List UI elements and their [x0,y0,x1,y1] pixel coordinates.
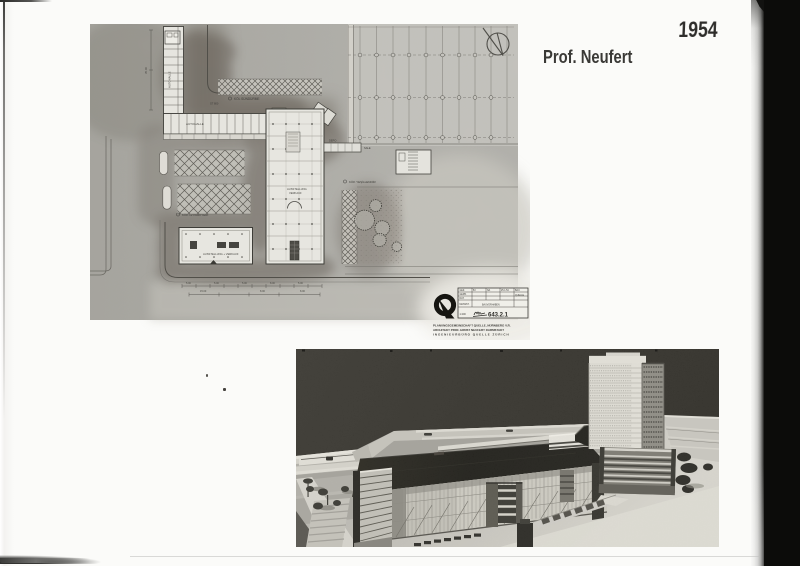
svg-text:35.00: 35.00 [144,67,148,74]
svg-text:5.00: 5.00 [186,282,191,285]
svg-text:SALE: SALE [364,146,371,150]
svg-text:8.00: 8.00 [260,290,265,293]
svg-text:5.00: 5.00 [298,282,303,285]
svg-text:AUSSTELLUNG: AUSSTELLUNG [287,187,307,191]
svg-text:GEZ.: GEZ. [460,290,466,292]
svg-text:KÖL SÜNDÜRME: KÖL SÜNDÜRME [234,97,260,101]
svg-text:ARCHITEKT PROF. ERNST NEUFERT: ARCHITEKT PROF. ERNST NEUFERT DARMSTADT [433,328,504,332]
svg-text:KÖK 12 PARKYERI: KÖK 12 PARKYERI [182,213,208,217]
svg-text:643.2.1: 643.2.1 [488,313,509,319]
svg-text:AUTOHALLE: AUTOHALLE [186,122,204,126]
svg-text:15.00: 15.00 [200,290,207,293]
svg-text:1:200: 1:200 [460,313,467,316]
svg-text:QUELLE: QUELLE [515,295,525,297]
svg-text:8.00: 8.00 [270,282,275,285]
svg-text:MASSST.: MASSST. [460,303,470,306]
svg-text:25.1.54: 25.1.54 [501,290,509,292]
svg-text:NA: NA [487,289,491,292]
svg-text:GEPR.: GEPR. [460,294,468,296]
svg-text:ST 800: ST 800 [210,102,219,106]
svg-text:VERKAUF: VERKAUF [289,191,302,195]
svg-text:DAT.: DAT. [460,297,465,300]
svg-text:AUSSTELLUNG + VERKAUF: AUSSTELLUNG + VERKAUF [203,252,239,256]
svg-text:AUTOHALLE: AUTOHALLE [168,71,172,88]
svg-text:B.I: B.I [473,290,476,292]
svg-text:DEPO: DEPO [329,139,336,143]
svg-text:5.00: 5.00 [214,282,219,285]
svg-text:8.00: 8.00 [300,290,305,293]
svg-text:INGENIEURBÜRO QUELLE ZÜRICH: INGENIEURBÜRO QUELLE ZÜRICH [433,332,510,337]
svg-text:BAU: BAU [515,289,520,292]
svg-text:5.00: 5.00 [242,282,247,285]
svg-text:PLANUNGSGEMEINSCHAFT QUELLE, N: PLANUNGSGEMEINSCHAFT QUELLE, NÜRNBERG V.… [433,323,511,328]
svg-text:KÖK YEŞİLLENDİR: KÖK YEŞİLLENDİR [349,179,376,184]
svg-text:BAUVORHABEN: BAUVORHABEN [482,304,500,307]
